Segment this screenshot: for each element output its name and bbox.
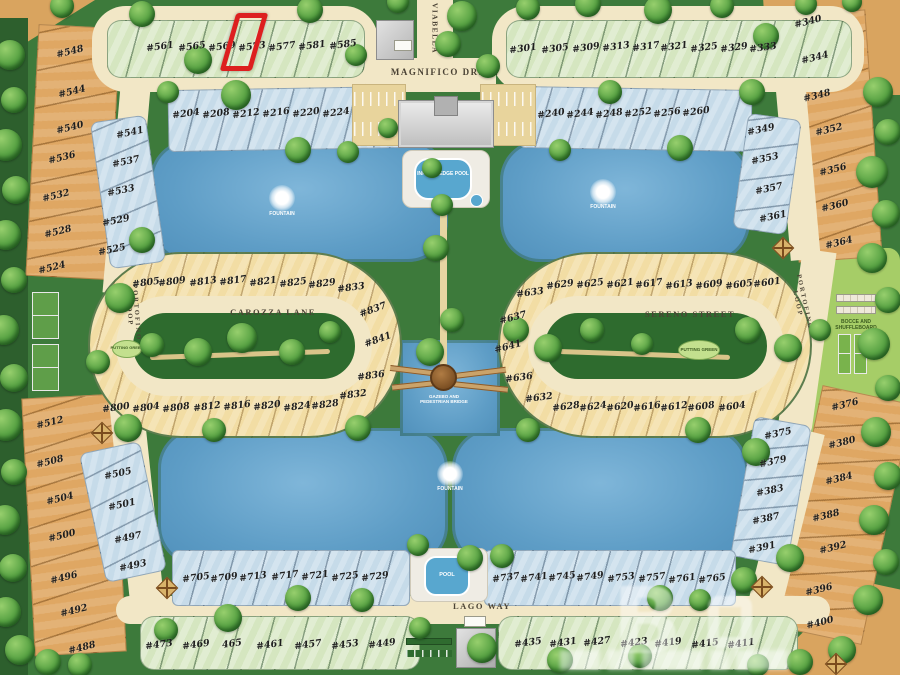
lot-labels-layer: #561#565#569#573#577#581#585#301#305#309… [0, 0, 900, 675]
lot-label-544[interactable]: #544 [57, 83, 87, 100]
lot-label-248[interactable]: #248 [594, 107, 623, 122]
lot-label-812[interactable]: #812 [192, 400, 221, 415]
lot-label-504[interactable]: #504 [45, 490, 75, 507]
lot-label-512[interactable]: #512 [35, 414, 65, 431]
lot-label-435[interactable]: #435 [513, 636, 542, 651]
lot-label-313[interactable]: #313 [601, 40, 630, 55]
lot-label-832[interactable]: #832 [338, 388, 367, 403]
lot-label-497[interactable]: #497 [113, 530, 142, 547]
lot-label-469[interactable]: #469 [181, 638, 210, 653]
lot-label-388[interactable]: #388 [811, 507, 841, 524]
lot-label-604[interactable]: #604 [717, 400, 746, 415]
lot-label-820[interactable]: #820 [252, 399, 281, 414]
lot-label-636[interactable]: #636 [504, 371, 533, 386]
lot-label-524[interactable]: #524 [37, 259, 67, 276]
lot-label-805[interactable]: #805 [131, 276, 160, 291]
lot-label-741[interactable]: #741 [519, 571, 548, 586]
lot-label-605[interactable]: #605 [724, 278, 753, 293]
lot-label-632[interactable]: #632 [524, 391, 553, 406]
lot-label-501[interactable]: #501 [107, 497, 136, 514]
lot-label-828[interactable]: #828 [310, 398, 339, 413]
lot-label-548[interactable]: #548 [55, 43, 85, 60]
lot-label-301[interactable]: #301 [508, 42, 537, 57]
lot-label-629[interactable]: #629 [545, 278, 574, 293]
lot-label-384[interactable]: #384 [824, 470, 854, 487]
lot-label-601[interactable]: #601 [752, 276, 781, 291]
watermark-word [710, 650, 728, 670]
lot-label-305[interactable]: #305 [540, 42, 569, 57]
lot-label-473[interactable]: #473 [144, 638, 173, 653]
lot-label-541[interactable]: #541 [115, 125, 144, 142]
lot-label-244[interactable]: #244 [565, 107, 594, 122]
lot-label-400[interactable]: #400 [805, 614, 835, 631]
lot-label-256[interactable]: #256 [652, 106, 681, 121]
watermark-word [608, 650, 634, 670]
lot-label-376[interactable]: #376 [830, 396, 860, 413]
lot-label-561[interactable]: #561 [145, 40, 174, 55]
lot-label-825[interactable]: #825 [278, 276, 307, 291]
lot-label-725[interactable]: #725 [330, 570, 359, 585]
lot-label-360[interactable]: #360 [820, 197, 850, 214]
lot-label-325[interactable]: #325 [689, 41, 718, 56]
lot-label-361[interactable]: #361 [758, 209, 787, 226]
lot-label-837[interactable]: #837 [358, 300, 388, 320]
lot-label-349[interactable]: #349 [746, 122, 775, 139]
lot-label-808[interactable]: #808 [161, 401, 190, 416]
lot-label-800[interactable]: #800 [101, 401, 130, 416]
lot-label-836[interactable]: #836 [356, 369, 385, 384]
lot-label-488[interactable]: #488 [67, 639, 97, 656]
lot-label-493[interactable]: #493 [118, 558, 147, 575]
lot-label-641[interactable]: #641 [493, 338, 523, 356]
lot-label-821[interactable]: #821 [248, 275, 277, 290]
lot-label-565[interactable]: #565 [177, 40, 206, 55]
lot-label-500[interactable]: #500 [47, 527, 77, 544]
lot-label-260[interactable]: #260 [681, 105, 710, 120]
lot-label-492[interactable]: #492 [59, 602, 89, 619]
lot-label-621[interactable]: #621 [605, 277, 634, 292]
lot-label-613[interactable]: #613 [664, 278, 693, 293]
lot-label-457[interactable]: #457 [293, 638, 322, 653]
lot-label-379[interactable]: #379 [758, 454, 787, 471]
lot-label-737[interactable]: #737 [491, 571, 520, 586]
lot-label-333[interactable]: #333 [748, 41, 777, 56]
lot-label-344[interactable]: #344 [800, 49, 830, 66]
lot-label-532[interactable]: #532 [41, 187, 71, 204]
lot-label-508[interactable]: #508 [35, 453, 65, 470]
lot-label-536[interactable]: #536 [47, 149, 77, 166]
lot-label-609[interactable]: #609 [694, 278, 723, 293]
lot-label-352[interactable]: #352 [814, 121, 844, 138]
lot-label-729[interactable]: #729 [360, 570, 389, 585]
lot-label-813[interactable]: #813 [188, 275, 217, 290]
lot-label-216[interactable]: #216 [261, 106, 290, 121]
lot-label-705[interactable]: #705 [181, 571, 210, 586]
lot-label-496[interactable]: #496 [49, 569, 79, 586]
lot-label-749[interactable]: #749 [575, 570, 604, 585]
lot-label-449[interactable]: #449 [367, 637, 396, 652]
lot-label-608[interactable]: #608 [686, 400, 715, 415]
lot-label-709[interactable]: #709 [209, 571, 238, 586]
watermark-glyph [708, 596, 752, 648]
lot-label-616[interactable]: #616 [632, 400, 661, 415]
lot-label-841[interactable]: #841 [363, 330, 393, 350]
lot-label-833[interactable]: #833 [336, 281, 365, 296]
lot-label-427[interactable]: #427 [582, 635, 611, 650]
lot-label-625[interactable]: #625 [575, 277, 604, 292]
lot-label-321[interactable]: #321 [659, 40, 688, 55]
lot-label-529[interactable]: #529 [101, 213, 130, 230]
lot-label-465[interactable]: 465 [221, 637, 242, 651]
lot-label-396[interactable]: #396 [804, 581, 834, 598]
lot-label-745[interactable]: #745 [547, 570, 576, 585]
lot-label-533[interactable]: #533 [106, 183, 135, 200]
lot-label-581[interactable]: #581 [297, 39, 326, 54]
lot-label-340[interactable]: #340 [793, 13, 823, 30]
lot-label-392[interactable]: #392 [818, 539, 848, 556]
lot-label-240[interactable]: #240 [536, 107, 565, 122]
lot-label-348[interactable]: #348 [802, 87, 832, 104]
lot-label-637[interactable]: #637 [498, 309, 528, 327]
lot-label-391[interactable]: #391 [747, 540, 776, 557]
lot-label-525[interactable]: #525 [97, 242, 126, 259]
lot-label-540[interactable]: #540 [55, 119, 85, 136]
lot-label-817[interactable]: #817 [218, 274, 247, 289]
lot-label-383[interactable]: #383 [755, 483, 784, 500]
lot-label-387[interactable]: #387 [751, 511, 780, 528]
watermark-word [736, 650, 788, 670]
site-plan-map: PUTTING GREEN PUTTING GREEN INFINITY EDG… [0, 0, 900, 675]
lot-label-505[interactable]: #505 [103, 466, 132, 483]
lot-label-220[interactable]: #220 [291, 106, 320, 121]
lot-label-453[interactable]: #453 [330, 638, 359, 653]
lot-label-364[interactable]: #364 [824, 234, 854, 251]
lot-label-721[interactable]: #721 [300, 569, 329, 584]
lot-label-809[interactable]: #809 [157, 275, 186, 290]
lot-label-212[interactable]: #212 [231, 107, 260, 122]
lot-label-816[interactable]: #816 [222, 399, 251, 414]
lot-label-204[interactable]: #204 [171, 107, 200, 122]
lot-label-624[interactable]: #624 [578, 400, 607, 415]
lot-label-617[interactable]: #617 [634, 277, 663, 292]
lot-label-357[interactable]: #357 [754, 181, 783, 198]
lot-label-309[interactable]: #309 [571, 41, 600, 56]
lot-label-375[interactable]: #375 [763, 426, 792, 443]
watermark-text-row [560, 650, 810, 672]
lot-label-224[interactable]: #224 [321, 106, 350, 121]
watermark-word [642, 650, 702, 670]
lot-label-804[interactable]: #804 [131, 401, 160, 416]
lot-label-620[interactable]: #620 [605, 400, 634, 415]
lot-label-537[interactable]: #537 [111, 154, 140, 171]
lot-label-329[interactable]: #329 [719, 41, 748, 56]
lot-label-713[interactable]: #713 [238, 570, 267, 585]
lot-label-380[interactable]: #380 [827, 434, 857, 451]
lot-label-829[interactable]: #829 [307, 277, 336, 292]
lot-label-628[interactable]: #628 [551, 400, 580, 415]
lot-label-317[interactable]: #317 [631, 40, 660, 55]
lot-label-528[interactable]: #528 [43, 223, 73, 240]
lot-label-461[interactable]: #461 [255, 638, 284, 653]
lot-label-252[interactable]: #252 [623, 106, 652, 121]
lot-label-585[interactable]: #585 [328, 38, 357, 53]
lot-label-824[interactable]: #824 [282, 400, 311, 415]
lot-label-612[interactable]: #612 [659, 400, 688, 415]
lot-label-208[interactable]: #208 [201, 107, 230, 122]
lot-label-717[interactable]: #717 [270, 569, 299, 584]
lot-label-577[interactable]: #577 [267, 40, 296, 55]
lot-label-431[interactable]: #431 [548, 636, 577, 651]
lot-label-765[interactable]: #765 [697, 572, 726, 587]
lot-label-633[interactable]: #633 [515, 286, 544, 301]
lot-label-356[interactable]: #356 [818, 161, 848, 178]
lot-label-353[interactable]: #353 [750, 151, 779, 168]
watermark-word [560, 650, 600, 670]
